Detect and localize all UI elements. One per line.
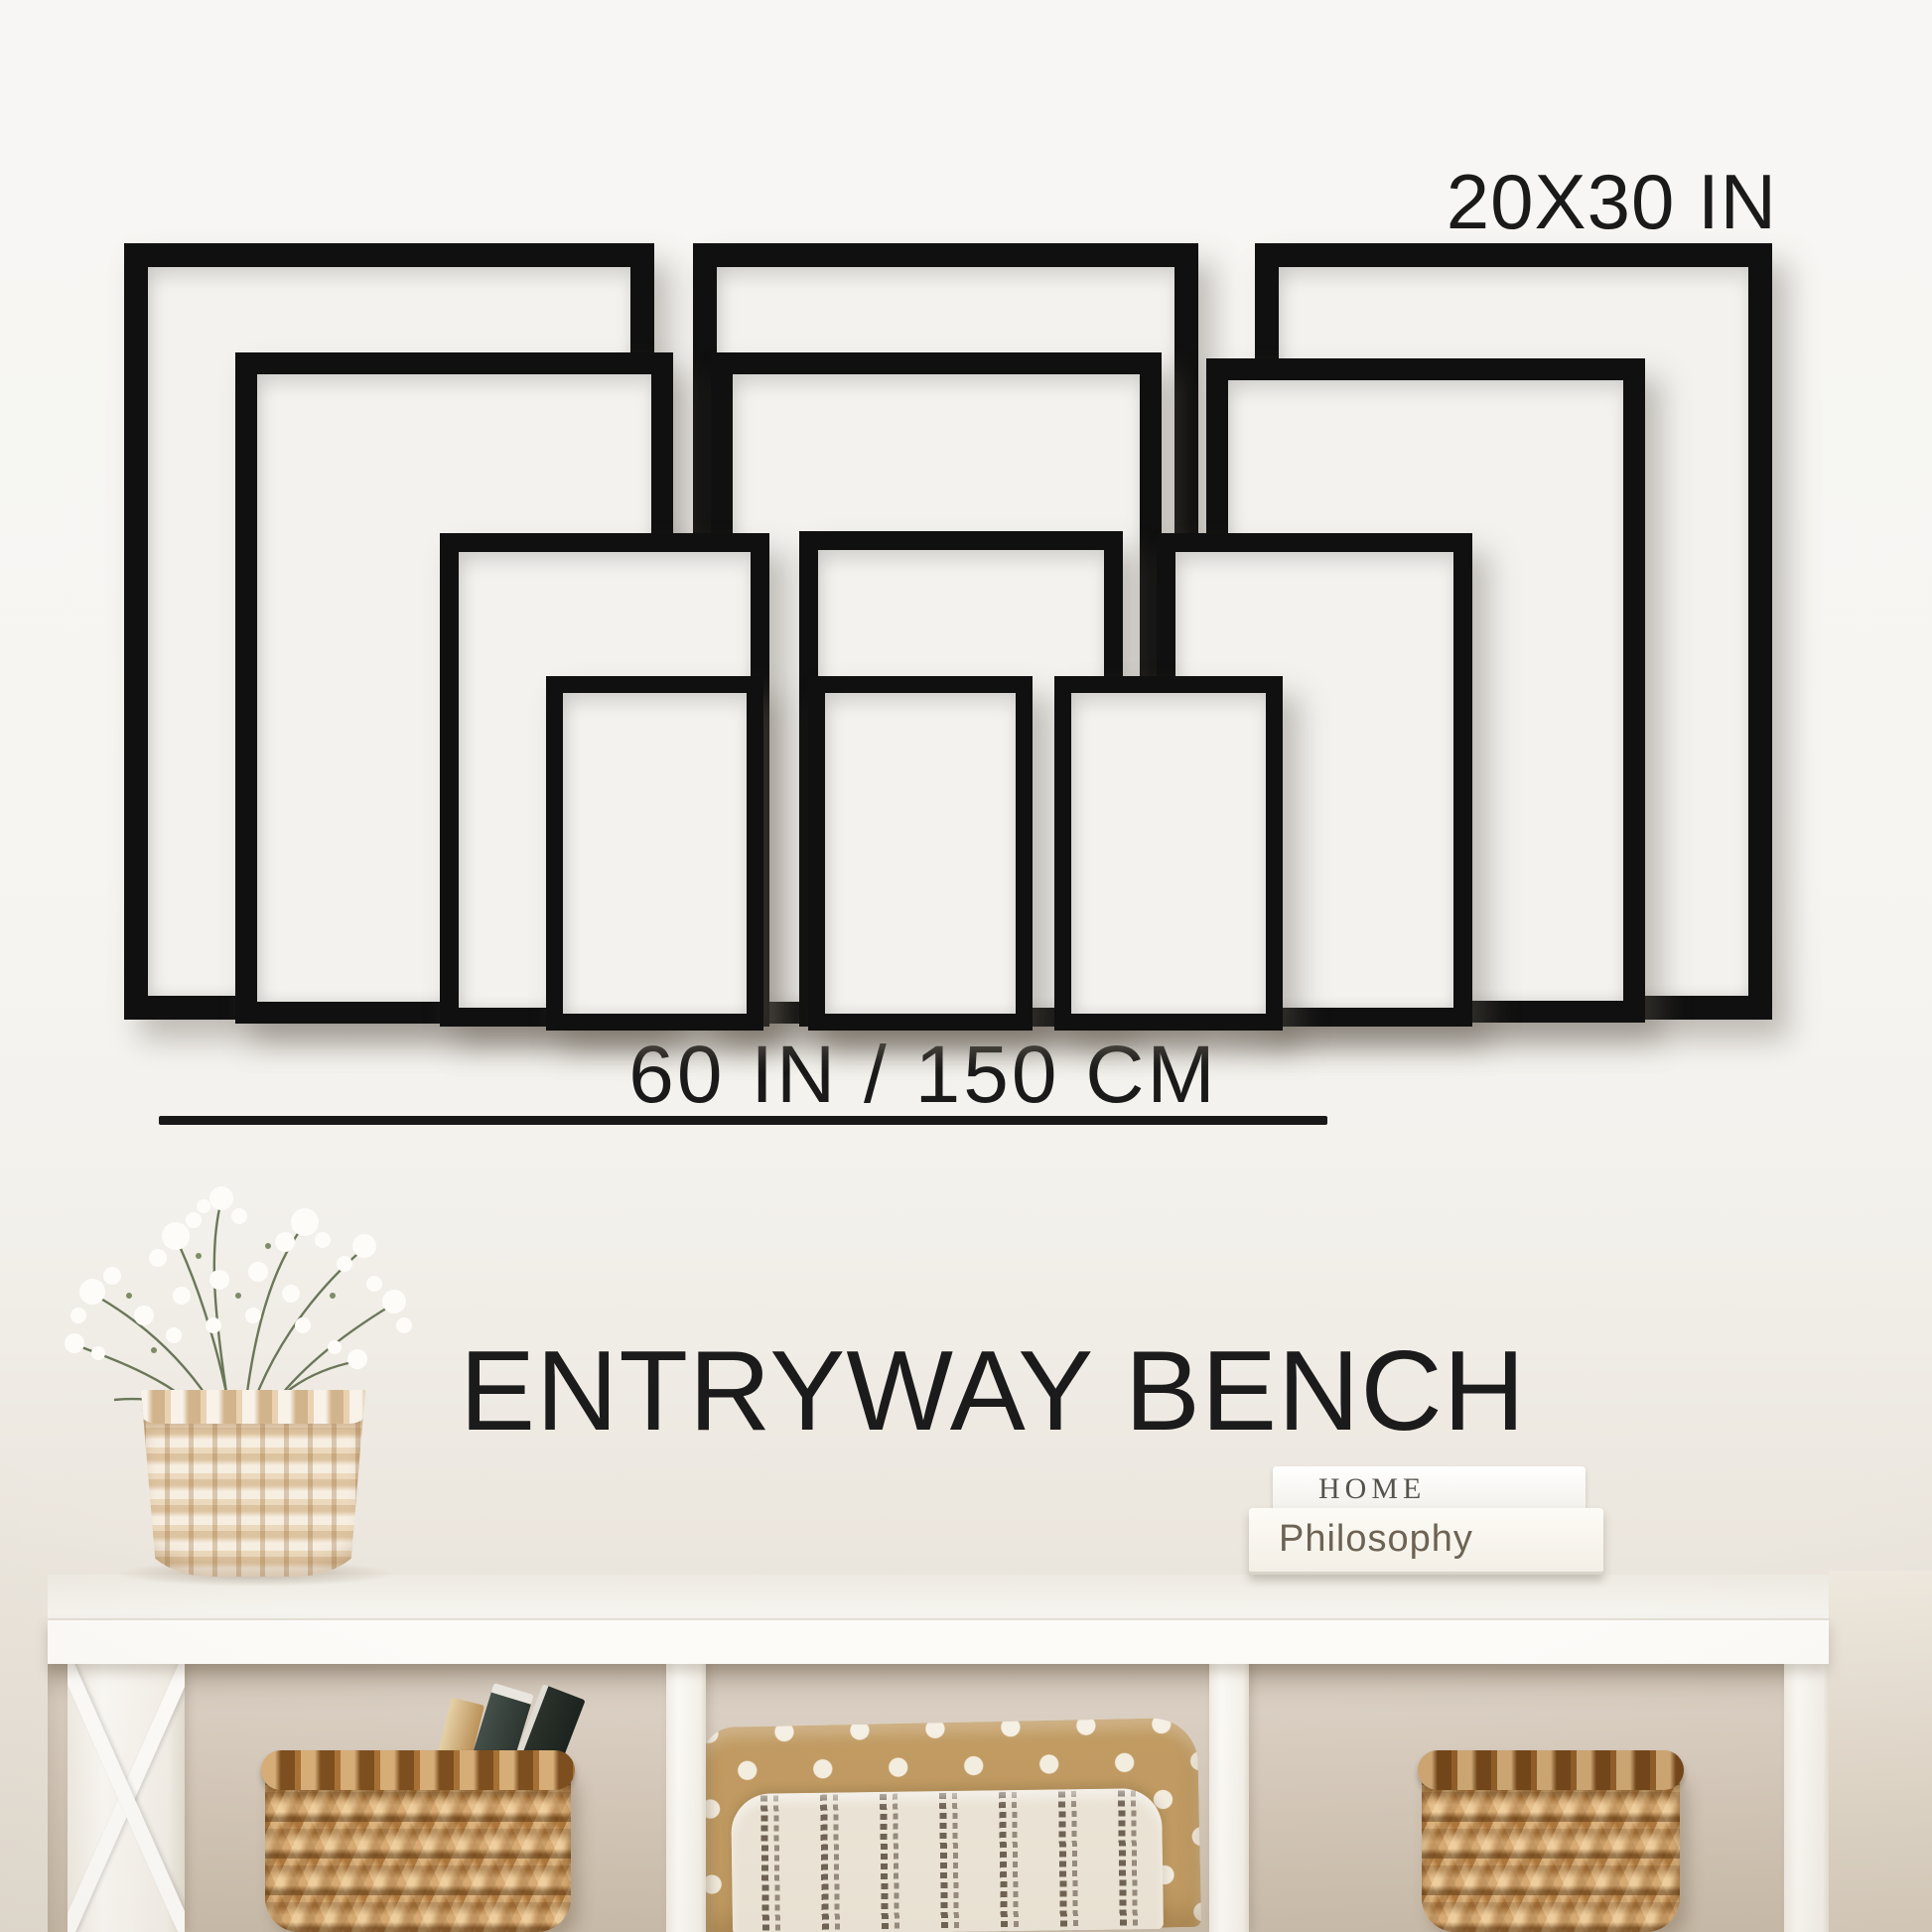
bench-apron (48, 1618, 1829, 1664)
bench-cubby-area (48, 1660, 1829, 1932)
bench-divider (666, 1660, 706, 1932)
wicker-basket-left (265, 1764, 571, 1932)
width-measurement-caption: 60 IN / 150 CM (628, 1029, 1217, 1122)
book-home-spine-text: HOME (1318, 1472, 1426, 1506)
book-philosophy-spine-text: Philosophy (1279, 1518, 1473, 1561)
width-measurement-line (159, 1116, 1327, 1125)
wall-background (1829, 1571, 1932, 1932)
striped-pillow (731, 1788, 1164, 1932)
wicker-basket-right (1422, 1764, 1680, 1932)
book-home: HOME (1273, 1466, 1586, 1513)
plant-wicker-pot (141, 1390, 365, 1577)
bench-side-panel-right (1784, 1660, 1829, 1932)
frame-a4-right (1054, 676, 1283, 1031)
frame-a4-left (546, 676, 763, 1031)
size-label-20x30: 20X30 IN (1447, 157, 1777, 247)
bench-side-panel-left (68, 1660, 185, 1932)
product-mockup-image: 20X30 IN A2 A3 A4 60 IN / 150 CM ENTRYWA… (0, 0, 1932, 1932)
bench-divider (1209, 1660, 1249, 1932)
book-philosophy: Philosophy (1249, 1508, 1603, 1575)
page-title: ENTRYWAY BENCH (460, 1326, 1526, 1456)
basket-rim (1418, 1750, 1684, 1790)
basket-rim (261, 1750, 575, 1790)
frame-a4-middle (808, 676, 1033, 1031)
